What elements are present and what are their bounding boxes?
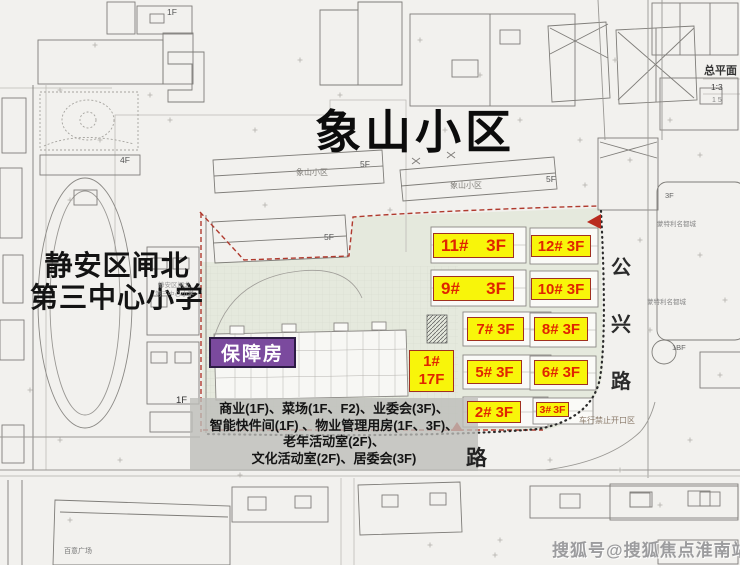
road-char: 兴 <box>611 308 631 337</box>
building-label-3: 3#3F <box>536 402 569 417</box>
building-label-1: 1#17F <box>409 350 454 392</box>
facilities-note: 商业(1F)、菜场(1F、F2)、业委会(3F)、智能快件间(1F) 、物业管理… <box>190 398 478 471</box>
building-number: 7# <box>476 321 493 338</box>
facilities-note-line: 文化活动室(2F)、居委会(3F) <box>190 451 478 468</box>
building-label-12: 12#3F <box>531 235 591 257</box>
district-title: 象山小区 <box>315 96 515 162</box>
building-floors: 17F <box>419 371 445 389</box>
map-label: 1F <box>176 396 187 406</box>
road-label-bottom: 路 <box>466 442 487 472</box>
building-floors: 3F <box>496 364 514 381</box>
building-number: 6# <box>542 364 559 381</box>
building-number: 3# <box>540 404 552 416</box>
building-label-7: 7#3F <box>467 317 524 341</box>
map-label: 1F <box>167 8 177 17</box>
map-label: 1 5 <box>712 97 722 104</box>
affordable-housing-badge: 保障房 <box>209 337 296 368</box>
map-label: 百意广场 <box>64 548 92 555</box>
building-number: 12# <box>538 238 563 255</box>
map-label: 3F <box>665 192 674 200</box>
building-floors: 3F <box>486 236 506 256</box>
building-number: 2# <box>475 404 492 421</box>
building-floors: 3F <box>497 321 515 338</box>
map-label: 静安区闸北 <box>158 283 191 290</box>
building-number: 10# <box>538 281 563 298</box>
building-label-10: 10#3F <box>531 278 591 300</box>
map-label: 象山小区 <box>450 182 482 190</box>
building-number: 1# <box>423 353 440 371</box>
map-label: 蒙特利名都城 <box>647 300 686 307</box>
building-number: 8# <box>542 321 559 338</box>
map-label: 1BF <box>672 344 686 352</box>
map-label: 总平面 <box>704 66 737 77</box>
map-label: 蒙特利名都城 <box>657 222 696 229</box>
site-plan-screenshot: 象山小区 静安区闸北 第三中心小学 保障房 商业(1F)、菜场(1F、F2)、业… <box>0 0 740 565</box>
building-floors: 3F <box>553 404 565 416</box>
building-floors: 3F <box>563 321 581 338</box>
building-floors: 3F <box>496 404 514 421</box>
map-label: 车行禁止开口区 <box>579 417 635 425</box>
building-number: 11# <box>441 236 468 256</box>
building-label-5: 5#3F <box>467 360 522 384</box>
map-label: 象山小区 <box>296 169 328 177</box>
map-label: 5F <box>546 175 556 184</box>
building-label-6: 6#3F <box>534 360 588 385</box>
map-label: 4F <box>120 156 130 165</box>
building-label-2: 2#3F <box>467 401 521 423</box>
building-floors: 3F <box>486 279 506 299</box>
map-label: 5F <box>324 233 334 242</box>
building-label-9: 9#3F <box>433 276 514 301</box>
facilities-note-line: 商业(1F)、菜场(1F、F2)、业委会(3F)、 <box>190 401 478 418</box>
building-floors: 3F <box>567 281 585 298</box>
building-label-11: 11#3F <box>433 233 514 258</box>
road-char: 路 <box>611 365 631 394</box>
road-label-gongxing: 公兴路 <box>611 251 631 394</box>
building-label-8: 8#3F <box>534 317 588 341</box>
building-floors: 3F <box>567 238 585 255</box>
map-label: 1∶3 <box>711 83 723 92</box>
school-name-line1: 静安区闸北 <box>18 250 216 282</box>
building-floors: 3F <box>563 364 581 381</box>
building-number: 5# <box>475 364 492 381</box>
map-label: 第三中心小学 <box>155 292 194 299</box>
map-label: 5F <box>360 160 370 169</box>
building-number: 9# <box>441 279 460 299</box>
facilities-note-line: 老年活动室(2F)、 <box>190 434 478 451</box>
road-char: 公 <box>611 251 631 280</box>
facilities-note-line: 智能快件间(1F) 、物业管理用房(1F、3F)、 <box>190 418 478 435</box>
watermark: 搜狐号@搜狐焦点淮南站 <box>552 536 740 561</box>
